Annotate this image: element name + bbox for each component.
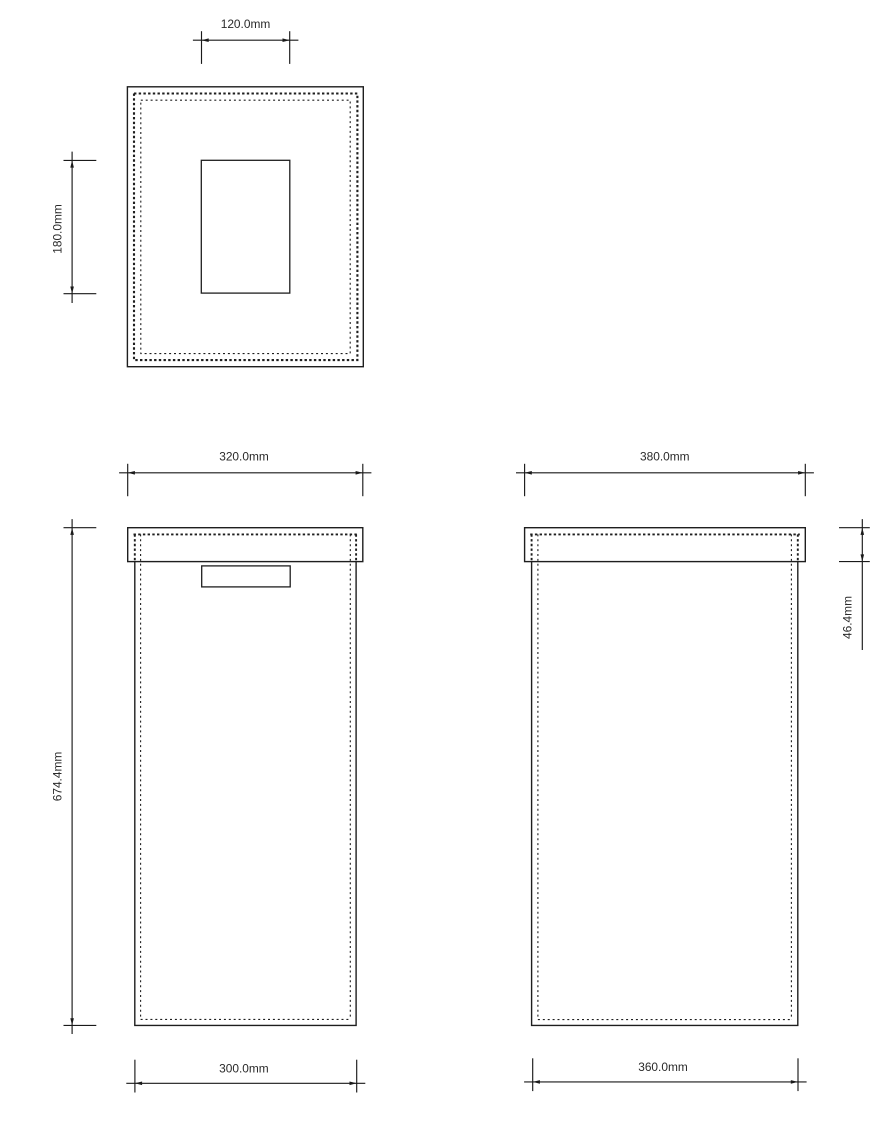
svg-text:180.0mm: 180.0mm <box>51 204 65 254</box>
svg-text:380.0mm: 380.0mm <box>640 450 690 464</box>
svg-text:320.0mm: 320.0mm <box>219 450 269 464</box>
svg-text:674.4mm: 674.4mm <box>51 752 65 802</box>
svg-text:300.0mm: 300.0mm <box>219 1061 269 1075</box>
svg-text:120.0mm: 120.0mm <box>221 17 271 31</box>
svg-text:360.0mm: 360.0mm <box>638 1060 688 1074</box>
svg-text:46.4mm: 46.4mm <box>841 596 855 639</box>
